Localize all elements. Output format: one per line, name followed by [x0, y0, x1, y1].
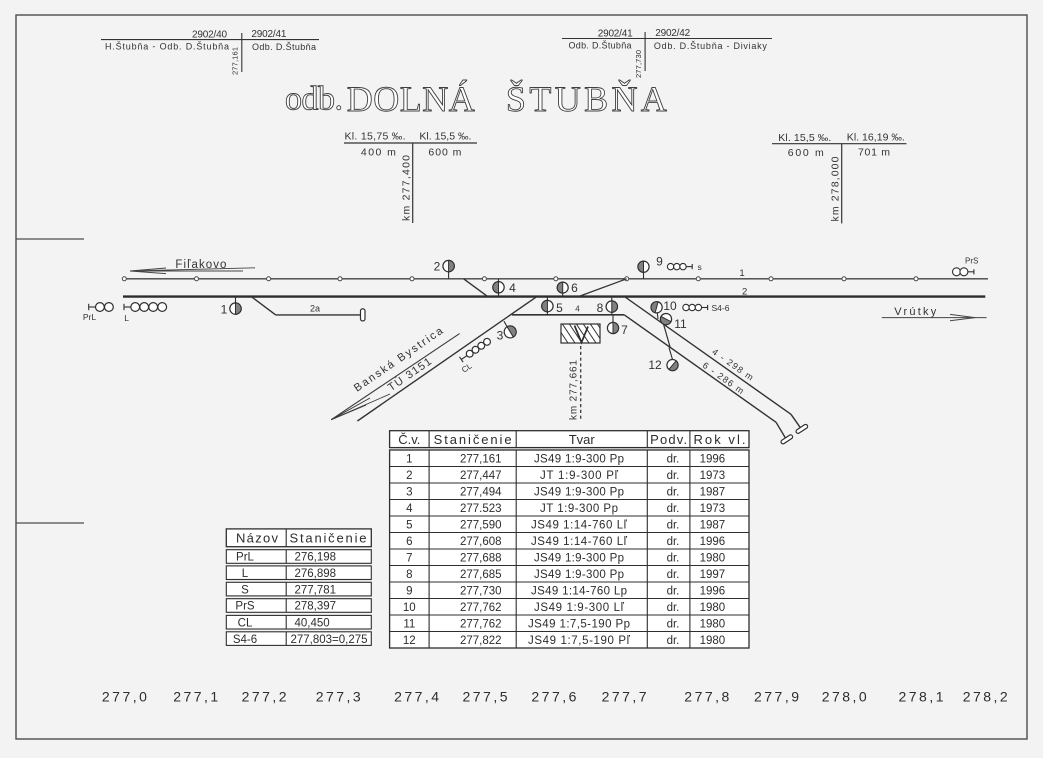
svg-text:8: 8: [597, 301, 604, 315]
svg-text:CL: CL: [238, 617, 253, 629]
svg-text:277,2: 277,2: [242, 689, 287, 705]
svg-text:PrS: PrS: [235, 601, 255, 613]
svg-text:2902/40: 2902/40: [192, 29, 227, 40]
svg-text:277,0: 277,0: [102, 689, 147, 705]
svg-text:277,161: 277,161: [231, 47, 240, 75]
svg-text:Č.v.: Č.v.: [398, 432, 420, 447]
svg-text:277,762: 277,762: [460, 602, 502, 614]
svg-text:4: 4: [575, 304, 580, 313]
svg-text:1987: 1987: [700, 519, 726, 531]
svg-text:1973: 1973: [700, 470, 726, 482]
svg-text:H.Štubňa - Odb. D.Štubňa: H.Štubňa - Odb. D.Štubňa: [105, 42, 229, 52]
svg-text:ŠTUBŇA: ŠTUBŇA: [506, 79, 667, 119]
svg-text:1: 1: [221, 303, 228, 317]
svg-text:4: 4: [406, 503, 413, 515]
svg-text:278,1: 278,1: [899, 689, 944, 705]
svg-text:dr.: dr.: [667, 519, 680, 531]
svg-text:1987: 1987: [700, 486, 726, 498]
svg-text:1996: 1996: [700, 453, 726, 465]
svg-text:277,5: 277,5: [463, 689, 508, 705]
svg-text:11: 11: [674, 317, 687, 331]
svg-text:10: 10: [403, 602, 416, 614]
svg-text:1980: 1980: [700, 618, 726, 630]
svg-text:PrL: PrL: [236, 552, 255, 564]
svg-text:3: 3: [406, 486, 412, 498]
svg-text:40,450: 40,450: [295, 617, 330, 629]
svg-text:dr.: dr.: [667, 602, 680, 614]
svg-text:6: 6: [571, 281, 578, 295]
svg-text:Odb. D.Štubňa: Odb. D.Štubňa: [569, 40, 632, 50]
svg-text:JS49 1:14-760 Lľ: JS49 1:14-760 Lľ: [531, 519, 628, 531]
svg-text:277,762: 277,762: [460, 618, 502, 630]
svg-text:277,8: 277,8: [684, 689, 729, 705]
svg-text:7: 7: [406, 552, 412, 564]
svg-text:2902/42: 2902/42: [655, 28, 690, 39]
svg-text:7: 7: [621, 323, 628, 337]
svg-text:277,447: 277,447: [460, 470, 502, 482]
svg-text:2a: 2a: [310, 303, 320, 313]
svg-text:dr.: dr.: [667, 470, 680, 482]
svg-text:Odb. D.Štubňa: Odb. D.Štubňa: [252, 42, 316, 52]
svg-text:6: 6: [406, 536, 412, 548]
svg-text:odb.: odb.: [285, 81, 343, 118]
svg-text:8: 8: [406, 569, 412, 581]
svg-text:Kl. 15,75 ‰.: Kl. 15,75 ‰.: [345, 130, 406, 142]
svg-text:278,0: 278,0: [822, 689, 867, 705]
svg-text:JS49 1:9-300 Lľ: JS49 1:9-300 Lľ: [534, 602, 625, 614]
svg-text:JS49 1:9-300 Pp: JS49 1:9-300 Pp: [534, 569, 624, 581]
svg-text:277,608: 277,608: [460, 536, 502, 548]
svg-text:1980: 1980: [700, 552, 726, 564]
svg-text:278,2: 278,2: [963, 689, 1008, 705]
svg-text:2: 2: [406, 470, 412, 482]
svg-text:JT 1:9-300 Pp: JT 1:9-300 Pp: [540, 503, 618, 515]
svg-text:JS49 1:9-300 Pp: JS49 1:9-300 Pp: [534, 453, 624, 465]
svg-text:4: 4: [509, 281, 516, 295]
svg-text:1980: 1980: [700, 635, 726, 647]
svg-text:S4-6: S4-6: [233, 634, 257, 646]
svg-text:2902/41: 2902/41: [251, 29, 286, 40]
svg-text:1980: 1980: [700, 602, 726, 614]
svg-text:DOLNÁ: DOLNÁ: [347, 79, 475, 119]
svg-text:10: 10: [663, 299, 677, 313]
svg-text:277,781: 277,781: [295, 584, 337, 596]
svg-text:Kl. 16,19 ‰.: Kl. 16,19 ‰.: [847, 132, 905, 144]
svg-text:S: S: [241, 584, 249, 596]
svg-text:9: 9: [656, 255, 663, 269]
svg-text:277,9: 277,9: [754, 689, 799, 705]
svg-text:277,494: 277,494: [460, 486, 502, 498]
svg-text:278,397: 278,397: [295, 601, 337, 613]
svg-text:701 m: 701 m: [858, 147, 890, 159]
svg-text:km 277,400: km 277,400: [401, 155, 413, 221]
svg-text:JT 1:9-300 Pľ: JT 1:9-300 Pľ: [540, 470, 619, 482]
svg-text:277,590: 277,590: [460, 519, 502, 531]
svg-text:276,198: 276,198: [295, 552, 337, 564]
svg-text:dr.: dr.: [667, 453, 680, 465]
svg-text:12: 12: [403, 635, 416, 647]
svg-text:277,3: 277,3: [316, 689, 361, 705]
svg-text:JS49 1:14-760 Lp: JS49 1:14-760 Lp: [531, 585, 627, 597]
svg-text:JS49 1:7,5-190 Pľ: JS49 1:7,5-190 Pľ: [528, 635, 631, 647]
svg-text:JS49 1:9-300 Pp: JS49 1:9-300 Pp: [534, 486, 624, 498]
svg-text:km 278,000: km 278,000: [830, 156, 842, 221]
svg-text:1996: 1996: [700, 585, 726, 597]
svg-text:dr.: dr.: [667, 536, 680, 548]
svg-text:11: 11: [403, 618, 415, 630]
svg-text:277,688: 277,688: [460, 552, 502, 564]
svg-text:1997: 1997: [700, 569, 726, 581]
svg-text:Kl. 15,5 ‰.: Kl. 15,5 ‰.: [419, 130, 471, 142]
svg-text:dr.: dr.: [667, 486, 680, 498]
svg-text:L: L: [242, 568, 249, 580]
svg-text:dr.: dr.: [667, 635, 680, 647]
svg-text:277,161: 277,161: [460, 453, 502, 465]
svg-text:2: 2: [434, 259, 441, 273]
svg-text:277,822: 277,822: [460, 635, 502, 647]
svg-text:dr.: dr.: [667, 585, 680, 597]
svg-text:dr.: dr.: [667, 618, 680, 630]
svg-text:277,685: 277,685: [460, 569, 502, 581]
svg-text:JS49 1:9-300 Pp: JS49 1:9-300 Pp: [534, 552, 624, 564]
svg-text:Rok vl.: Rok vl.: [694, 432, 746, 447]
svg-text:Staničenie: Staničenie: [434, 432, 512, 447]
svg-text:277,4: 277,4: [394, 689, 439, 705]
svg-text:277.523: 277.523: [460, 503, 502, 515]
svg-text:Staničenie: Staničenie: [290, 531, 367, 546]
svg-text:1: 1: [739, 268, 744, 279]
svg-text:1996: 1996: [700, 536, 726, 548]
svg-text:L: L: [124, 313, 129, 323]
svg-text:277,1: 277,1: [173, 689, 218, 705]
svg-text:277,803=0,275: 277,803=0,275: [291, 634, 368, 646]
svg-text:5: 5: [406, 519, 412, 531]
svg-text:2902/41: 2902/41: [598, 28, 633, 39]
svg-text:3: 3: [497, 328, 504, 342]
svg-text:JS49 1:14-760 Lľ: JS49 1:14-760 Lľ: [531, 536, 628, 548]
svg-text:Podv.: Podv.: [650, 432, 687, 447]
svg-text:276,898: 276,898: [295, 568, 337, 580]
svg-text:dr.: dr.: [667, 569, 680, 581]
svg-text:277,7: 277,7: [602, 689, 647, 705]
svg-text:s: s: [698, 262, 702, 272]
svg-text:Odb. D.Štubňa - Diviaky: Odb. D.Štubňa - Diviaky: [654, 41, 768, 51]
svg-text:PrS: PrS: [965, 257, 978, 266]
svg-text:dr.: dr.: [667, 503, 680, 515]
svg-text:277,730: 277,730: [634, 50, 643, 78]
svg-text:dr.: dr.: [667, 552, 680, 564]
svg-text:JS49 1:7,5-190 Pp: JS49 1:7,5-190 Pp: [528, 618, 630, 630]
svg-text:400 m: 400 m: [361, 147, 396, 159]
svg-text:12: 12: [648, 358, 662, 372]
svg-text:2: 2: [742, 287, 747, 298]
svg-text:9: 9: [406, 585, 412, 597]
svg-text:600 m: 600 m: [428, 147, 461, 159]
svg-text:km 277,661: km 277,661: [569, 360, 580, 420]
svg-text:PrL: PrL: [83, 312, 97, 322]
svg-text:277,6: 277,6: [531, 689, 576, 705]
svg-text:5: 5: [556, 301, 563, 315]
svg-text:Názov: Názov: [236, 531, 279, 546]
svg-text:Kl. 15,5 ‰.: Kl. 15,5 ‰.: [778, 132, 831, 144]
svg-text:600 m: 600 m: [788, 147, 824, 159]
svg-text:1: 1: [406, 453, 412, 465]
svg-text:Tvar: Tvar: [569, 432, 596, 447]
svg-text:S4-6: S4-6: [712, 303, 730, 313]
svg-text:1973: 1973: [700, 503, 726, 515]
svg-text:277,730: 277,730: [460, 585, 502, 597]
